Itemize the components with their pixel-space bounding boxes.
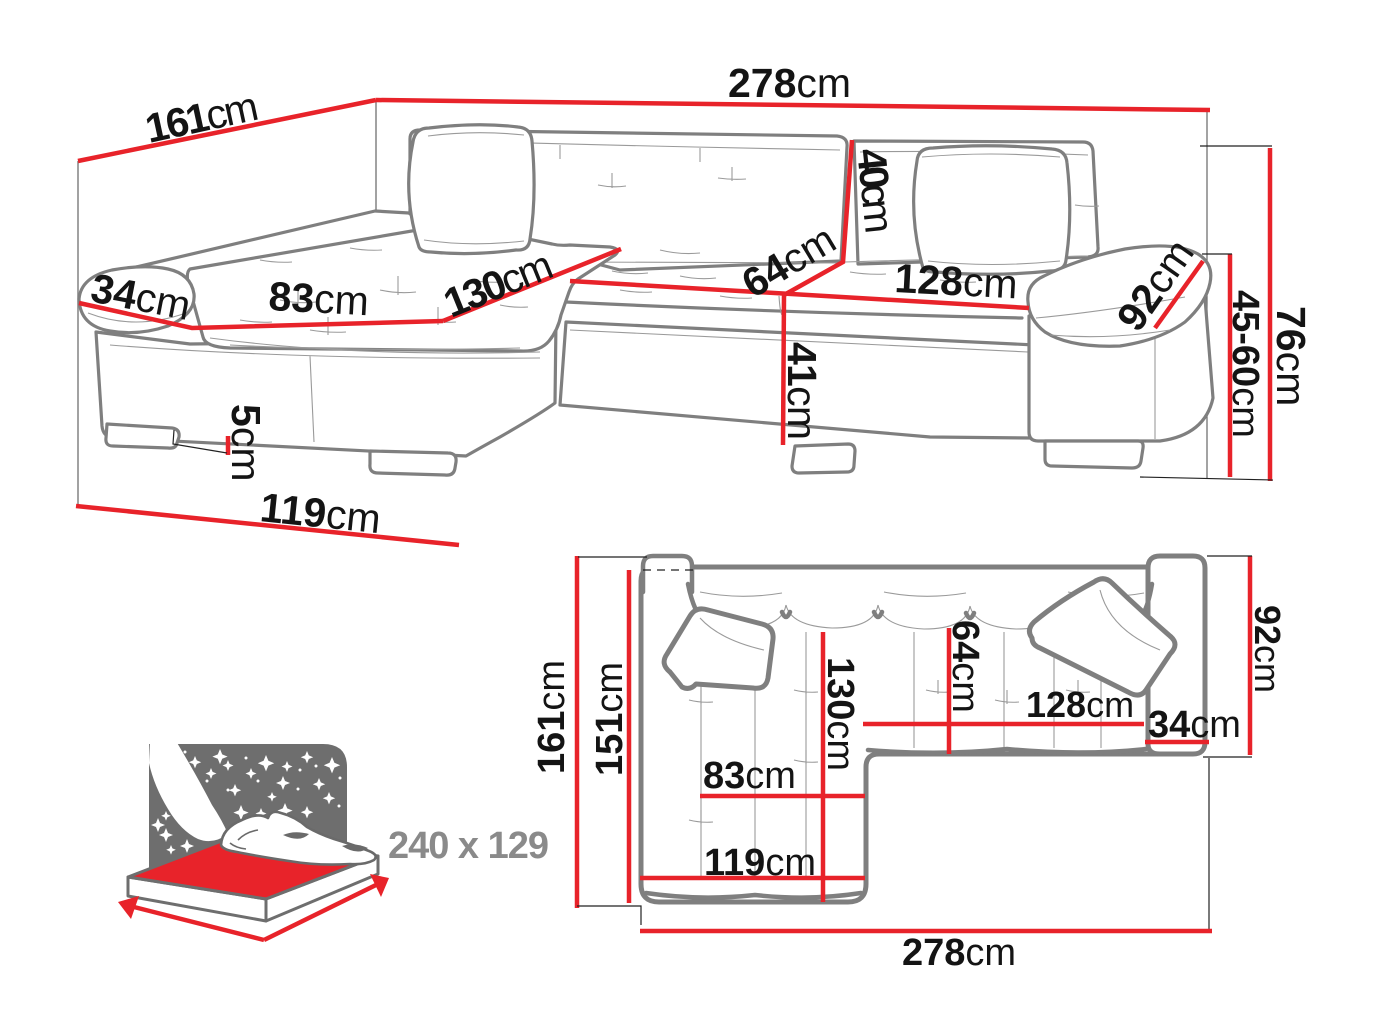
svg-text:128cm: 128cm xyxy=(1026,684,1134,725)
svg-text:83cm: 83cm xyxy=(703,755,796,797)
svg-text:83cm: 83cm xyxy=(268,273,371,324)
svg-text:119cm: 119cm xyxy=(258,484,383,542)
svg-text:161cm: 161cm xyxy=(141,83,262,152)
svg-text:45-60cm: 45-60cm xyxy=(1224,290,1266,438)
svg-text:76cm: 76cm xyxy=(1268,306,1314,406)
svg-text:128cm: 128cm xyxy=(894,255,1019,307)
svg-text:130cm: 130cm xyxy=(819,657,861,771)
svg-text:34cm: 34cm xyxy=(1148,704,1241,746)
svg-text:278cm: 278cm xyxy=(902,932,1016,974)
svg-text:41cm: 41cm xyxy=(779,342,825,440)
svg-text:240 x 129: 240 x 129 xyxy=(388,825,549,867)
svg-text:40cm: 40cm xyxy=(848,146,903,235)
svg-text:278cm: 278cm xyxy=(728,60,851,106)
svg-text:161cm: 161cm xyxy=(531,660,573,774)
svg-text:119cm: 119cm xyxy=(704,842,816,884)
svg-text:5cm: 5cm xyxy=(223,404,269,481)
svg-text:92cm: 92cm xyxy=(1247,605,1288,693)
svg-text:64cm: 64cm xyxy=(944,620,986,713)
svg-text:151cm: 151cm xyxy=(589,662,631,776)
